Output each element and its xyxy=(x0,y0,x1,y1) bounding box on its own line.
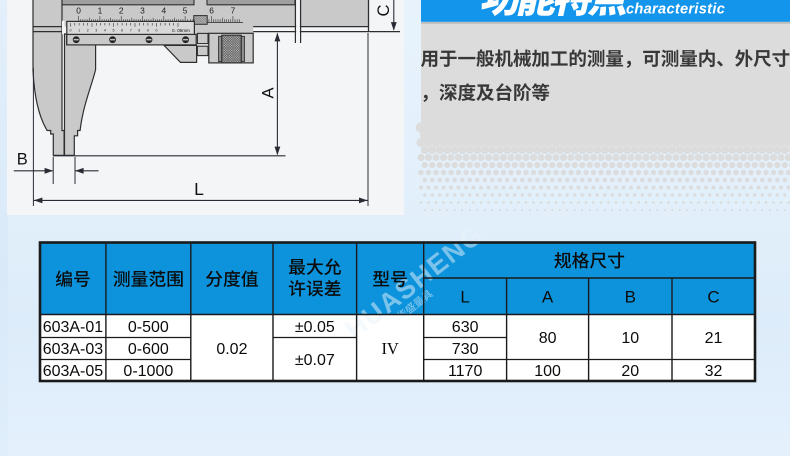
svg-text:10: 10 xyxy=(621,330,639,347)
svg-text:603A-05: 603A-05 xyxy=(43,363,104,380)
svg-text:L: L xyxy=(460,287,469,306)
svg-text:0-1000: 0-1000 xyxy=(123,363,173,380)
svg-text:0.02: 0.02 xyxy=(216,341,247,358)
svg-text:1170: 1170 xyxy=(448,363,483,380)
svg-text:80: 80 xyxy=(539,330,557,347)
svg-text:±0.07: ±0.07 xyxy=(295,352,335,369)
svg-text:0-500: 0-500 xyxy=(128,319,169,336)
svg-text:0-600: 0-600 xyxy=(128,341,169,358)
svg-text:630: 630 xyxy=(452,319,479,336)
svg-text:A: A xyxy=(542,287,554,306)
svg-text:C: C xyxy=(707,287,719,306)
svg-text:603A-01: 603A-01 xyxy=(43,319,104,336)
svg-text:20: 20 xyxy=(621,363,639,380)
svg-text:±0.05: ±0.05 xyxy=(295,319,335,336)
svg-text:100: 100 xyxy=(534,363,561,380)
svg-text:21: 21 xyxy=(705,330,723,347)
svg-text:32: 32 xyxy=(705,363,723,380)
svg-text:IV: IV xyxy=(381,339,398,358)
svg-text:603A-03: 603A-03 xyxy=(43,341,104,358)
svg-text:characteristic: characteristic xyxy=(626,1,725,17)
svg-text:730: 730 xyxy=(452,341,479,358)
svg-text:B: B xyxy=(625,287,636,306)
